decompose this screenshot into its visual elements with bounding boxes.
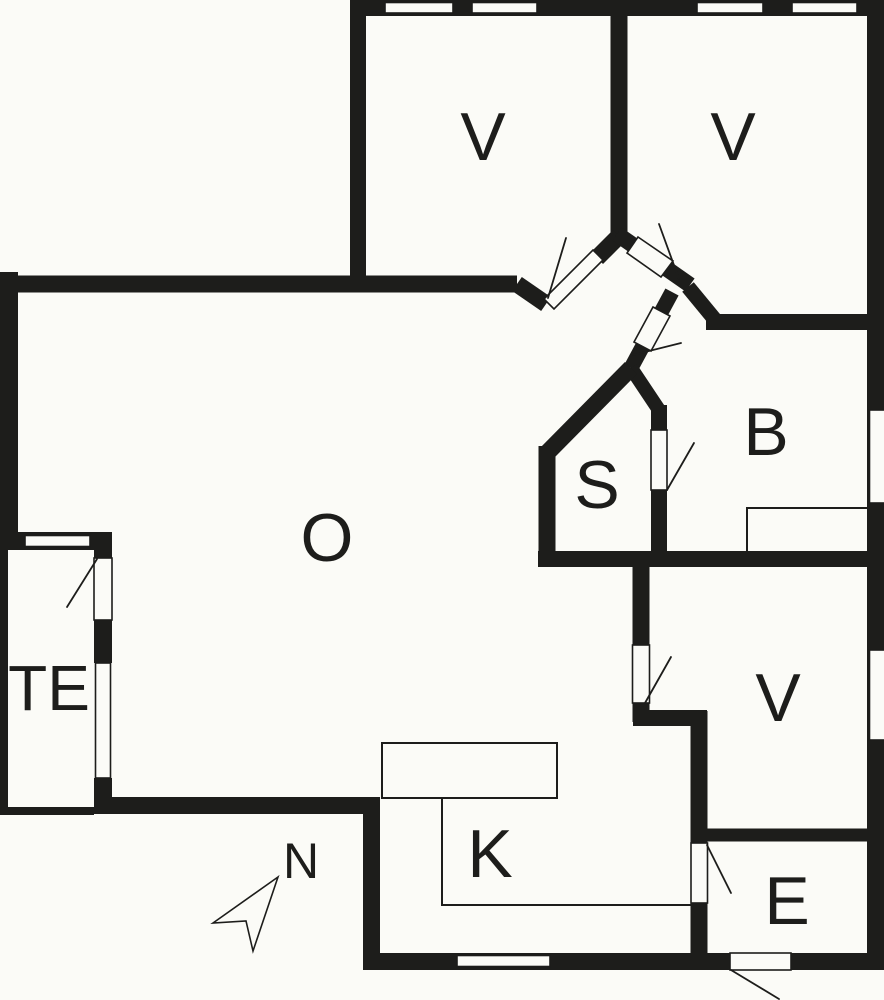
wall-terrace-divider-b [94, 620, 112, 663]
bathroom-fixture [747, 508, 867, 551]
door-sauna [651, 430, 667, 490]
label-bathroom: B [743, 394, 788, 470]
wall-living-top-step [517, 284, 546, 304]
wall-kitchen-left [363, 797, 380, 970]
label-terrace: TE [8, 652, 90, 724]
door-entry [691, 843, 708, 903]
swing-sauna [667, 443, 694, 490]
door-swings [67, 224, 779, 999]
window-bedroom-right [870, 650, 884, 740]
label-bedroom-right: V [755, 660, 801, 736]
door-entrance-exterior [730, 953, 791, 970]
wall-terrace-bottom [0, 807, 94, 815]
wall-bottom [363, 953, 884, 970]
window-bedroom2-a [697, 3, 763, 14]
window-terrace-divider [96, 663, 111, 778]
window-terrace-top [25, 536, 90, 547]
window-bedroom2-b [792, 3, 857, 14]
swing-terrace [67, 559, 97, 607]
compass-label: N [283, 833, 319, 889]
wall-bedroom1-left [350, 0, 366, 284]
label-living-room: O [301, 500, 354, 576]
kitchen-counter-top [382, 743, 557, 798]
window-bedroom1-a [385, 3, 453, 14]
label-sauna: S [574, 447, 619, 523]
wall-terrace-divider-a [94, 532, 112, 558]
label-kitchen: K [467, 816, 512, 892]
label-entry: E [764, 863, 809, 939]
compass: N [213, 833, 319, 951]
swing-entrance-exterior [731, 970, 779, 999]
door-hall-bathroom [634, 307, 670, 351]
window-kitchen-bottom [457, 956, 550, 967]
floor-plan-page: N V V B S O TE V K E [0, 0, 884, 1000]
window-bedroom1-b [472, 3, 537, 14]
swing-entry [707, 845, 731, 893]
wall-living-left [0, 272, 18, 545]
floor-plan-svg: N V V B S O TE V K E [0, 0, 884, 1000]
wall-sauna-diagonal [547, 368, 631, 453]
label-bedroom-top-right: V [710, 99, 756, 175]
wall-terrace-left [0, 550, 8, 815]
label-bedroom-top-left: V [460, 99, 506, 175]
wall-living-bottom [94, 797, 380, 814]
door-bedroom-right [633, 645, 650, 703]
window-bathroom-right [870, 410, 884, 503]
north-arrow-icon [213, 877, 278, 951]
door-terrace [94, 558, 112, 620]
